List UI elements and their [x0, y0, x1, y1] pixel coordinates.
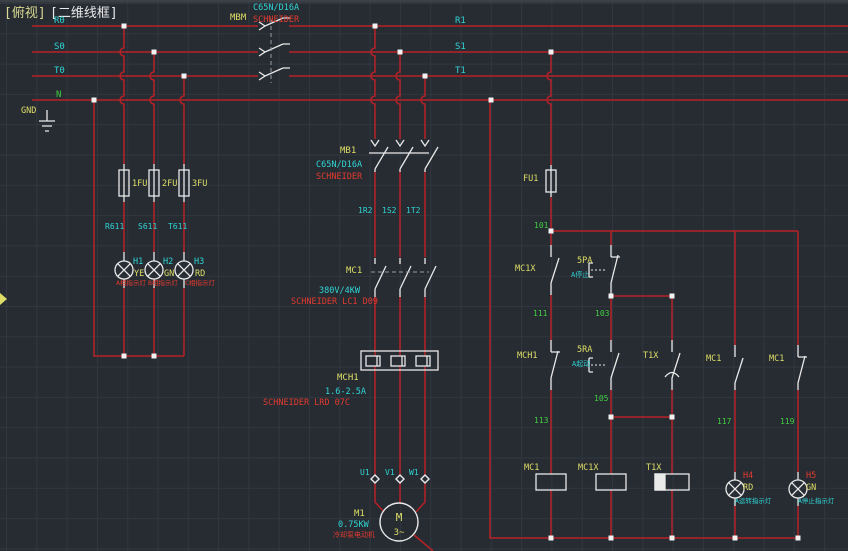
wire-network[interactable]	[32, 26, 848, 551]
label-motor-m: M	[396, 511, 403, 524]
label-lamp-h5-desc: A停止指示灯	[798, 496, 835, 505]
power-wiring[interactable]	[32, 26, 848, 551]
label-wire-101: 101	[534, 221, 549, 230]
label-motor-phase: 3~	[394, 528, 405, 538]
junction-grip[interactable]	[733, 536, 738, 541]
label-mb1-model: C65N/D16A	[316, 160, 362, 170]
junction-grip[interactable]	[609, 294, 614, 299]
label-btn-5ra-desc: A起动	[572, 359, 590, 368]
label-btn-5ra-tag: 5RA	[577, 345, 592, 355]
junction-grip[interactable]	[373, 24, 378, 29]
ground-symbol[interactable]	[39, 110, 55, 131]
label-mc1-no-tag: MC1	[706, 354, 721, 364]
label-wire-103: 103	[595, 309, 610, 318]
label-mc1-nc-tag: MC1	[769, 354, 784, 364]
fuse-fu1[interactable]	[546, 165, 556, 197]
junction-grip[interactable]	[609, 415, 614, 420]
junction-grip[interactable]	[122, 354, 127, 359]
junction-grip[interactable]	[489, 98, 494, 103]
label-wire-t611: T611	[168, 222, 187, 231]
label-mb1-tag: MB1	[340, 146, 356, 156]
junction-grip[interactable]	[549, 536, 554, 541]
pushbutton-5pa[interactable]	[589, 245, 620, 295]
label-coil-mc1x-tag: MC1X	[578, 463, 599, 473]
grid	[0, 0, 848, 551]
cad-drawing-area: [俯视][二维线框]R0S0T0NGNDR1S1T1MBMC65N/D16ASC…	[0, 0, 848, 551]
label-fuse3-tag: 3FU	[192, 179, 207, 189]
label-bus-s0: S0	[54, 42, 65, 52]
label-lamp-h1-desc: A相指示灯	[116, 278, 146, 287]
pushbutton-5ra[interactable]	[589, 340, 619, 390]
label-term-u1: U1	[360, 468, 370, 477]
label-lamp-h4-tag: H4	[743, 471, 753, 481]
label-wire-111: 111	[533, 309, 548, 318]
label-coil-t1x-tag: T1X	[646, 463, 662, 473]
breaker-mbm[interactable]	[259, 18, 290, 83]
label-fuse2-tag: 2FU	[162, 179, 177, 189]
junction-grip[interactable]	[92, 98, 97, 103]
label-wire-1t2: 1T2	[406, 206, 421, 215]
label-wire-119: 119	[780, 417, 795, 426]
label-term-v1: V1	[385, 468, 395, 477]
label-fuse1-tag: 1FU	[132, 179, 147, 189]
label-lamp-h3-desc: C相指示灯	[185, 278, 215, 287]
junction-grip[interactable]	[122, 24, 127, 29]
junction-grip[interactable]	[182, 74, 187, 79]
label-lamp-h2-color: GN	[164, 269, 174, 279]
label-bus-t1: T1	[455, 66, 466, 76]
label-fu1-tag: FU1	[523, 174, 538, 184]
label-lamp-h2-tag: H2	[163, 257, 173, 267]
label-bus-r0: R0	[54, 16, 65, 26]
coil-t1x[interactable]	[655, 474, 689, 490]
label-mb1-brand: SCHNEIDER	[316, 172, 363, 182]
coil-mc1x[interactable]	[596, 474, 626, 490]
coil-mc1[interactable]	[536, 474, 566, 490]
label-mc1-tag: MC1	[346, 266, 362, 276]
junction-grip[interactable]	[549, 50, 554, 55]
junction-grip[interactable]	[549, 229, 554, 234]
label-lamp-h2-desc: B相指示灯	[148, 278, 178, 287]
label-bus-r1: R1	[455, 16, 466, 26]
label-btn-5pa-tag: 5PA	[577, 256, 592, 266]
label-wire-1r2: 1R2	[358, 206, 373, 215]
label-mc1-brand: SCHNEIDER LC1 D09	[291, 297, 378, 307]
label-wire-1s2: 1S2	[382, 206, 397, 215]
breaker-mb1[interactable]	[369, 140, 438, 172]
label-btn-5pa-desc: A停止	[571, 270, 589, 279]
labels: [俯视][二维线框]R0S0T0NGNDR1S1T1MBMC65N/D16ASC…	[4, 3, 835, 539]
label-mch1-brand: SCHNEIDER LRD 07C	[263, 398, 350, 408]
label-bus-t0: T0	[54, 66, 65, 76]
label-t1x-contact-tag: T1X	[643, 351, 659, 361]
label-mc1-rating: 380V/4KW	[319, 286, 361, 296]
junction-grip[interactable]	[796, 536, 801, 541]
schematic-svg: [俯视][二维线框]R0S0T0NGNDR1S1T1MBMC65N/D16ASC…	[0, 0, 848, 551]
junction-grip[interactable]	[670, 415, 675, 420]
label-lamp-h1-color: YE	[134, 269, 144, 279]
label-term-w1: W1	[409, 468, 419, 477]
label-motor-desc: 冷却泵电动机	[333, 530, 375, 539]
junction-grip[interactable]	[152, 354, 157, 359]
label-mbm-tag: MBM	[230, 13, 247, 23]
label-mc1x-contact-tag: MC1X	[515, 264, 536, 274]
junction-grip[interactable]	[423, 74, 428, 79]
label-mch1-tag: MCH1	[337, 373, 359, 383]
label-motor-tag: M1	[354, 509, 365, 519]
label-bus-s1: S1	[455, 42, 466, 52]
label-gnd-label: GND	[21, 106, 36, 116]
label-lamp-h3-tag: H3	[194, 257, 204, 267]
label-lamp-h1-tag: H1	[133, 257, 143, 267]
junction-grip[interactable]	[609, 536, 614, 541]
label-mbm-brand: SCHNEIDER	[253, 15, 300, 25]
label-mch1-rating: 1.6-2.5A	[325, 387, 366, 397]
label-wire-117: 117	[717, 417, 732, 426]
label-lamp-h3-color: RD	[195, 269, 205, 279]
terminal-u1	[371, 475, 379, 483]
junction-grip[interactable]	[152, 50, 157, 55]
label-bus-n: N	[56, 90, 61, 100]
label-lamp-h4-desc: A运转指示灯	[735, 496, 772, 505]
junction-grip[interactable]	[670, 536, 675, 541]
contactor-mc1-power[interactable]	[371, 258, 436, 297]
viewport-top-edge	[0, 0, 848, 3]
label-mch1-contact-tag: MCH1	[517, 351, 537, 361]
label-wire-105: 105	[594, 394, 609, 403]
junction-grip[interactable]	[670, 294, 675, 299]
label-wire-r611: R611	[105, 222, 124, 231]
label-motor-rating: 0.75KW	[338, 520, 370, 530]
label-lamp-h4-color: RD	[743, 483, 753, 493]
label-wire-113: 113	[534, 416, 549, 425]
terminal-w1	[421, 475, 429, 483]
label-wire-s611: S611	[138, 222, 157, 231]
label-coil-mc1-tag: MC1	[524, 463, 539, 473]
label-mbm-model: C65N/D16A	[253, 3, 299, 13]
label-title-view: [俯视]	[4, 5, 46, 21]
label-lamp-h5-tag: H5	[806, 471, 816, 481]
viewport-left-marker	[0, 293, 7, 305]
fuse-group-1fu-3fu[interactable]	[119, 164, 189, 202]
junction-grip[interactable]	[398, 50, 403, 55]
contact-t1x[interactable]	[665, 340, 680, 390]
label-lamp-h5-color: GN	[806, 483, 816, 493]
